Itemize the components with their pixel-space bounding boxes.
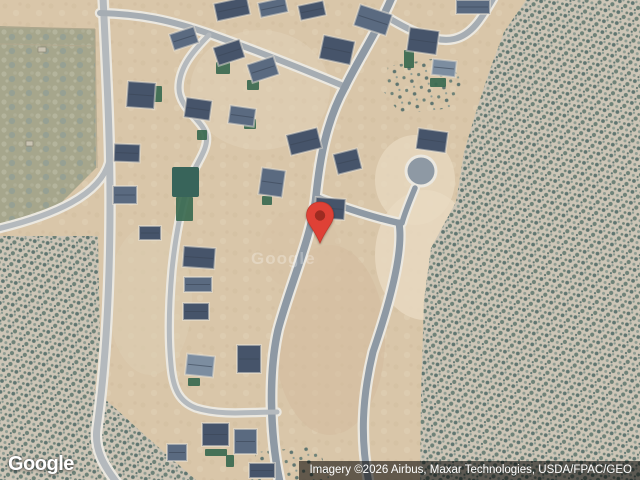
google-watermark: Google — [251, 249, 316, 269]
pin-inner-dot — [315, 210, 325, 220]
pin-body — [307, 202, 334, 243]
map-pin-marker[interactable] — [305, 201, 335, 245]
google-logo[interactable]: Google — [8, 453, 74, 476]
map-viewport[interactable]: Google Google Imagery ©2026 Airbus, Maxa… — [0, 0, 640, 480]
imagery-attribution: Imagery ©2026 Airbus, Maxar Technologies… — [299, 461, 640, 480]
